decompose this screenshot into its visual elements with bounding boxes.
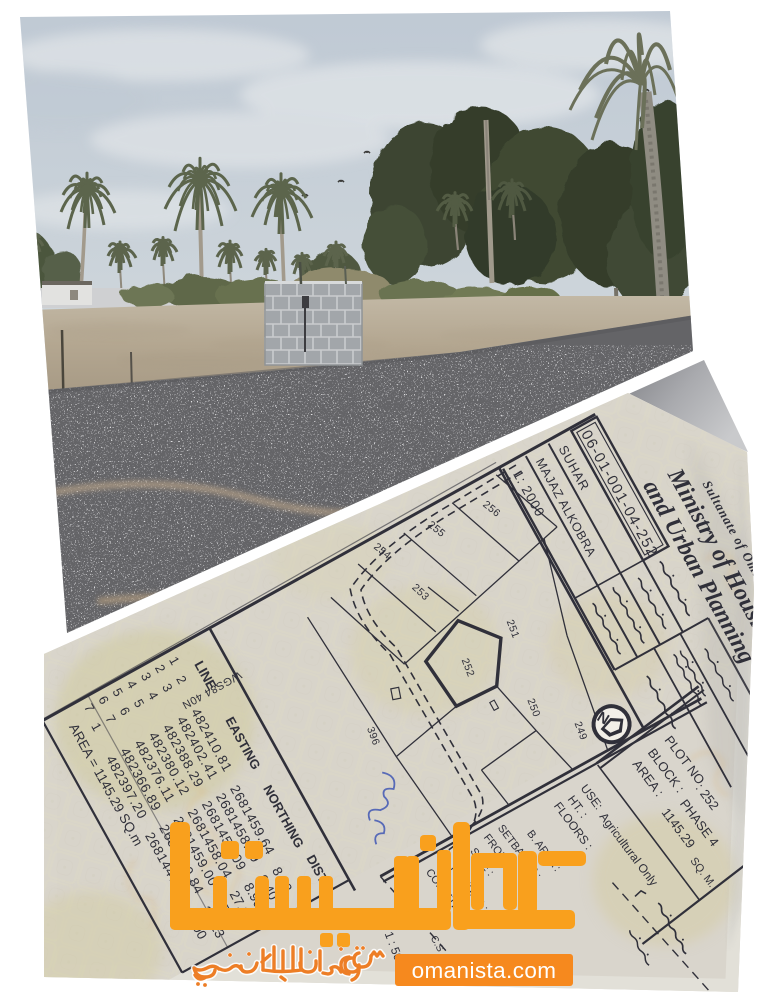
svg-text:omanista.com: omanista.com xyxy=(412,958,557,983)
